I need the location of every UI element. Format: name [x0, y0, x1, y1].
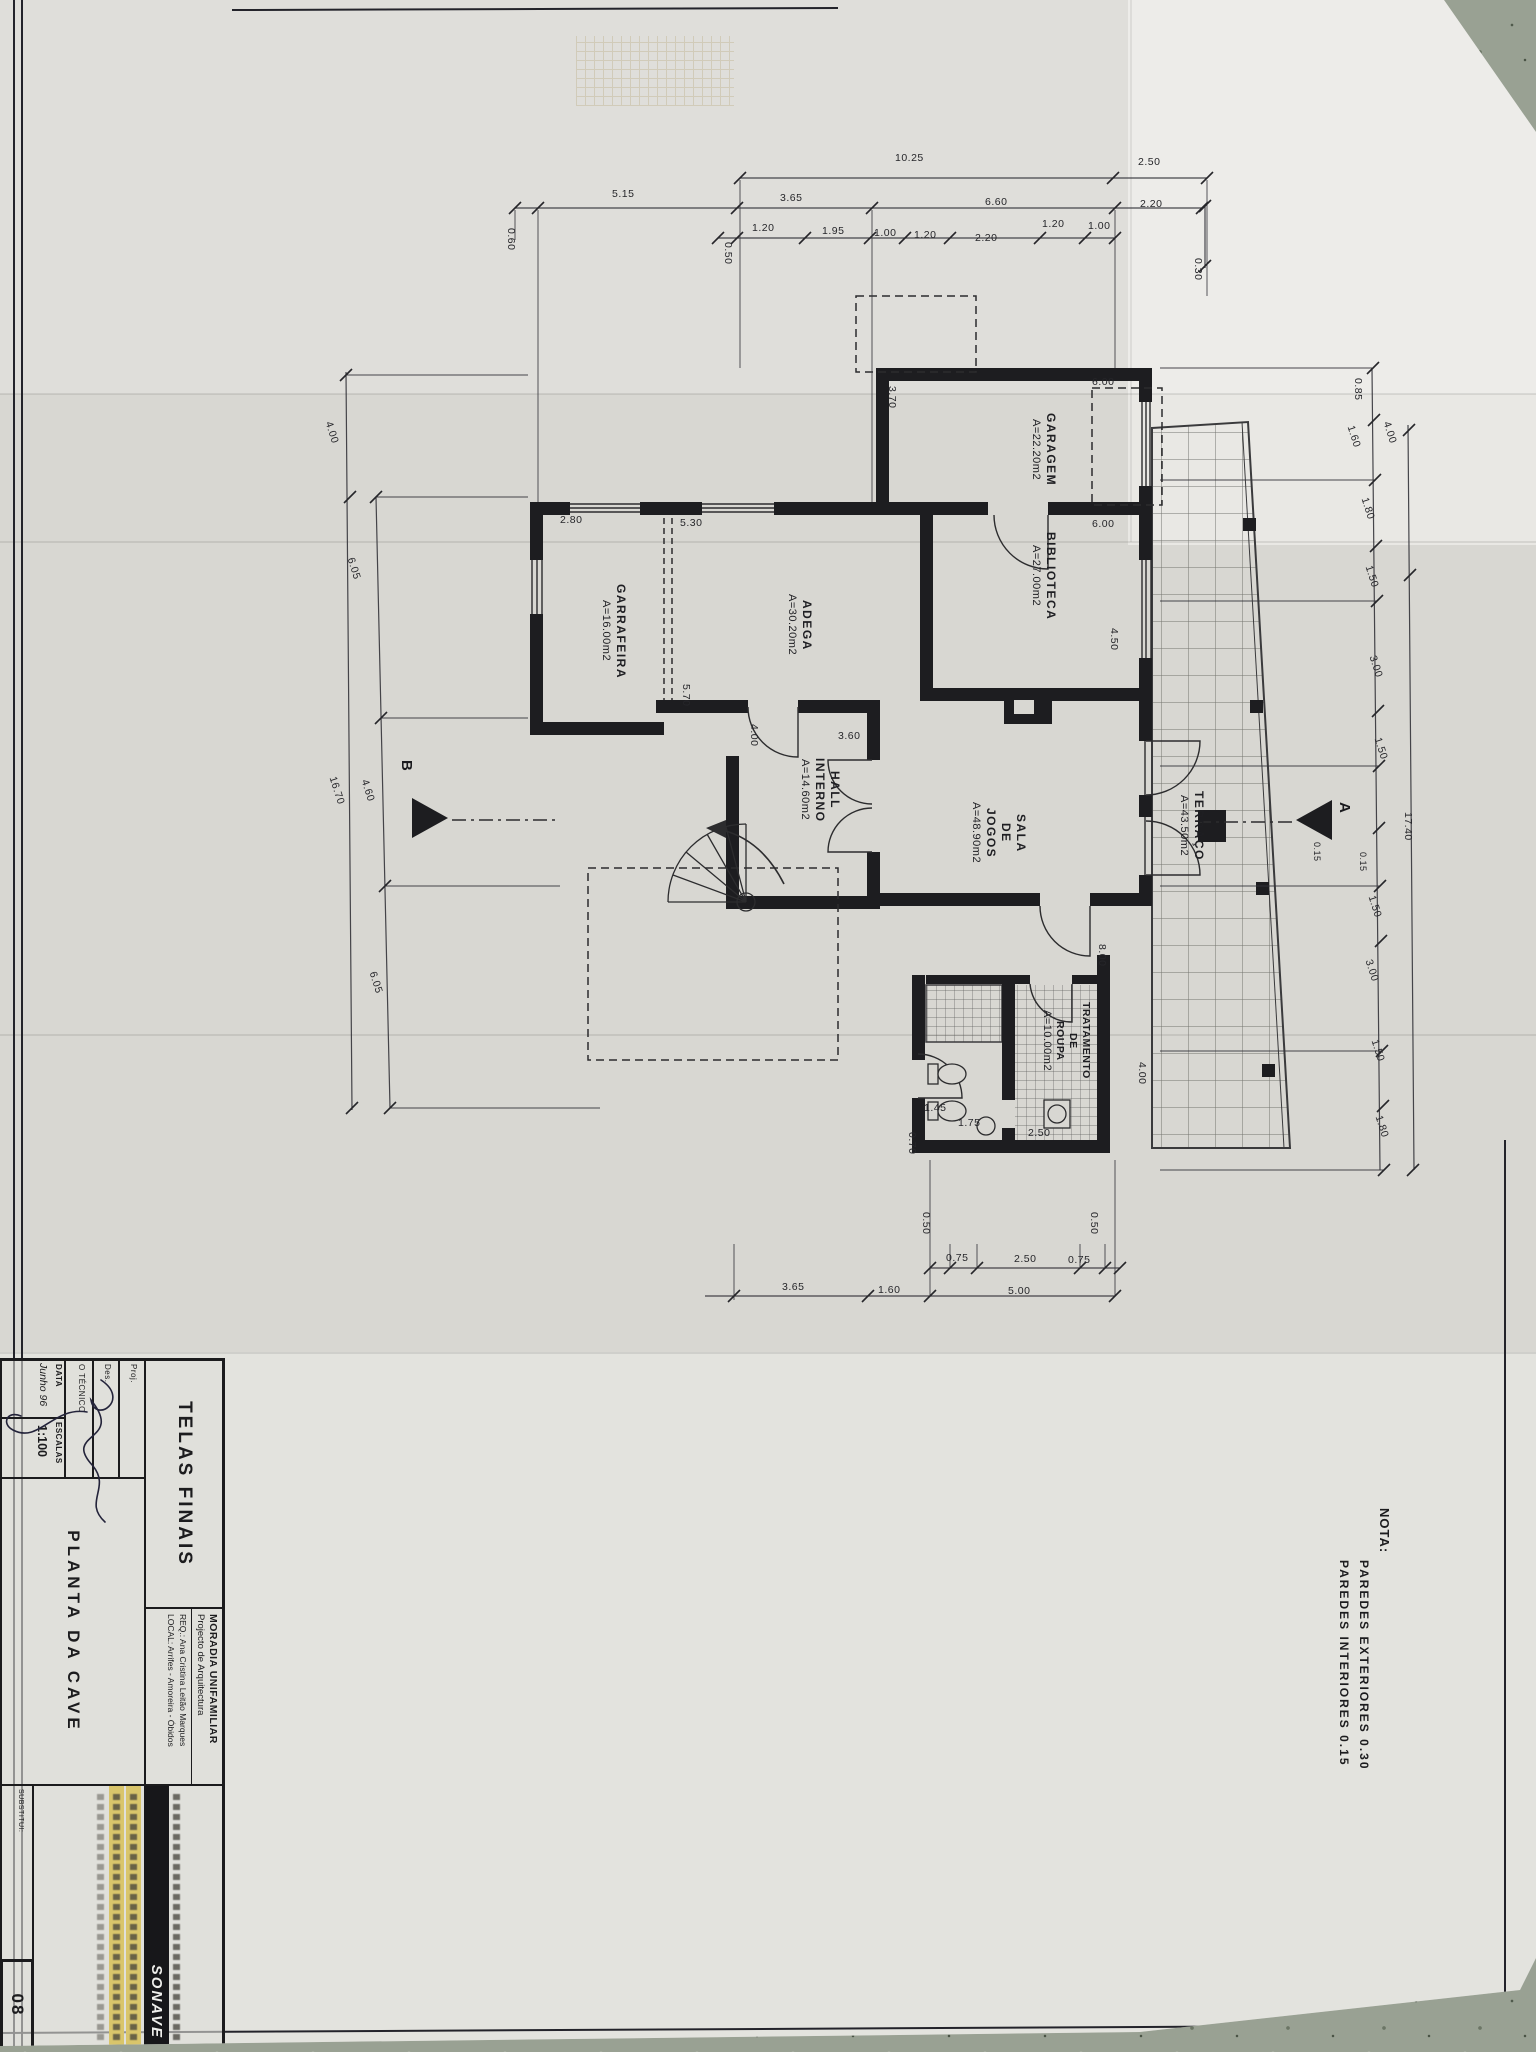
note-line: PAREDES INTERIORES 0.15: [1337, 1560, 1351, 1978]
address-highlight-line: [109, 1786, 124, 2049]
dim-label: 0.50: [920, 1212, 932, 1234]
dim-label: 5.15: [612, 188, 634, 200]
dim-label: 5.70: [680, 684, 692, 706]
room-area: A=10.00m2: [1040, 988, 1053, 1093]
client-line: REQ.: Ana Cristina Leitão Marques: [178, 1614, 188, 1779]
room-name: DE: [998, 792, 1013, 874]
dim-label: 0.85: [1352, 378, 1364, 400]
room-label-tratamento-de-roupa: TRATAMENTO DE ROUPA A=10.00m2: [1036, 988, 1092, 1093]
small-print-illegible: [97, 1794, 104, 2041]
room-name: INTERNO: [812, 742, 827, 838]
title-block: TELAS FINAIS MORADIA UNIFAMILIAR Project…: [0, 1358, 225, 2048]
drawing-title: PLANTA DA CAVE: [63, 1530, 83, 1732]
dim-label: 0.75: [1068, 1254, 1090, 1266]
room-name: ROUPA: [1053, 988, 1066, 1093]
dim-label: 2.50: [1138, 156, 1160, 168]
title-block-project-cell: MORADIA UNIFAMILIAR Projecto de Arquitec…: [145, 1608, 223, 1785]
dim-label: 1.20: [752, 222, 774, 234]
dim-label: 4.00: [748, 724, 760, 746]
room-label-hall-interno: HALL INTERNO A=14.60m2: [788, 742, 842, 838]
room-area: A=16.00m2: [598, 578, 613, 684]
dim-label: 4.00: [1136, 1062, 1148, 1084]
dim-label: 1.20: [1042, 218, 1064, 230]
room-area: A=43.50m2: [1176, 778, 1191, 873]
section-marker-b: B: [398, 760, 415, 771]
dim-label: 3.60: [838, 730, 860, 742]
note-title: NOTA:: [1377, 1508, 1392, 1978]
company-logo-band: SONAVE: [144, 1786, 169, 2049]
room-name: JOGOS: [983, 792, 998, 874]
room-label-biblioteca: BIBLIOTECA A=27.00m2: [1016, 524, 1058, 628]
room-name: GARRAFEIRA: [613, 578, 628, 684]
title-block-company-cell: SONAVE: [33, 1785, 223, 2050]
note-block: NOTA: PAREDES EXTERIORES 0.30 PAREDES IN…: [1300, 1508, 1392, 1978]
dim-label: 0.60: [505, 228, 517, 250]
room-name: SALA: [1013, 792, 1028, 874]
company-name: SONAVE: [148, 1965, 165, 2039]
sheet-number: 08: [7, 1994, 27, 2017]
dim-label: 0.15: [1312, 842, 1322, 862]
dim-label: 1.75: [958, 1117, 980, 1129]
dim-label: 2.20: [975, 232, 997, 244]
room-name: ADEGA: [799, 582, 814, 668]
dim-label: 5.00: [1008, 1285, 1030, 1297]
photo-of-floor-plan: { "colors":{"paper":"#d8d7d2","ink":"#1d…: [0, 0, 1536, 2048]
dim-label: 10.25: [895, 152, 924, 164]
room-name: HALL: [827, 742, 842, 838]
room-area: A=48.90m2: [968, 792, 983, 874]
dim-label: 0.30: [1192, 258, 1204, 280]
dim-label: 0.50: [722, 242, 734, 264]
dim-label: 2.20: [1140, 198, 1162, 210]
dim-label: 1.60: [878, 1284, 900, 1296]
location-line: LOCAL: Arrifes - Amoreira - Óbidos: [166, 1614, 176, 1779]
room-area: A=22.20m2: [1028, 402, 1043, 498]
dim-label: 0.75: [946, 1252, 968, 1264]
drawing-paper-sheet: GARAGEM A=22.20m2 BIBLIOTECA A=27.00m2 A…: [0, 0, 1536, 2048]
dim-label: 3.65: [782, 1281, 804, 1293]
room-name: GARAGEM: [1043, 402, 1058, 498]
dim-label: 6.00: [1092, 518, 1114, 530]
room-name: TERRAÇO: [1191, 778, 1206, 873]
room-label-sala-de-jogos: SALA DE JOGOS A=48.90m2: [968, 792, 1028, 874]
dim-label: 8.00: [1096, 944, 1108, 966]
technician-signature: [0, 1366, 139, 1556]
small-print-illegible: [173, 1794, 180, 2041]
dim-label: 2.80: [560, 514, 582, 526]
dim-label: 17.40: [1402, 812, 1414, 841]
shower-floor-hatch: [926, 985, 1002, 1042]
substitui-cell: SUBSTITUI:: [1, 1785, 33, 1960]
dim-label: 5.30: [680, 517, 702, 529]
dim-label: 1.00: [1088, 220, 1110, 232]
section-b-triangle: [412, 798, 448, 838]
series-title: TELAS FINAIS: [173, 1401, 195, 1567]
room-area: A=14.60m2: [797, 742, 812, 838]
section-a-triangle: [1296, 800, 1332, 840]
dim-label: 2.50: [1014, 1253, 1036, 1265]
dashed-projection-lines: [588, 296, 1162, 1060]
dim-label: 0.15: [1358, 852, 1368, 872]
room-label-garrafeira: GARRAFEIRA A=16.00m2: [586, 578, 628, 684]
room-name: BIBLIOTECA: [1043, 524, 1058, 628]
dim-label: 1.45: [924, 1102, 946, 1114]
room-name: DE: [1066, 988, 1079, 1093]
room-label-garagem: GARAGEM A=22.20m2: [1014, 402, 1058, 498]
dim-label: 3.70: [886, 386, 898, 408]
room-label-terraco: TERRAÇO A=43.50m2: [1166, 778, 1206, 873]
dim-label: 3.65: [780, 192, 802, 204]
project-subtitle: Projecto de Arquitectura: [195, 1614, 206, 1779]
dim-label: 1.20: [914, 229, 936, 241]
dim-label: 1.95: [822, 225, 844, 237]
substitui-label: SUBSTITUI:: [16, 1786, 25, 1836]
title-block-series-cell: TELAS FINAIS: [145, 1360, 223, 1608]
room-name: TRATAMENTO: [1079, 988, 1092, 1093]
room-label-adega: ADEGA A=30.20m2: [772, 582, 814, 668]
dim-label: 0.50: [1088, 1212, 1100, 1234]
sheet-number-cell: 08: [1, 1960, 33, 2050]
dim-label: 1.00: [874, 227, 896, 239]
note-line: PAREDES EXTERIORES 0.30: [1357, 1560, 1371, 1978]
fireplace-notch: [1014, 700, 1034, 714]
dim-label: 4.50: [1108, 628, 1120, 650]
dim-label: 6.60: [985, 196, 1007, 208]
room-area: A=30.20m2: [784, 582, 799, 668]
room-area: A=27.00m2: [1028, 524, 1043, 628]
dim-label: 6.00: [1092, 376, 1114, 388]
address-highlight-line: [126, 1786, 141, 2049]
section-marker-a: A: [1336, 802, 1353, 813]
project-title: MORADIA UNIFAMILIAR: [207, 1614, 219, 1779]
dim-label: 2.50: [1028, 1127, 1050, 1139]
dim-label: 0.70: [906, 1132, 918, 1154]
